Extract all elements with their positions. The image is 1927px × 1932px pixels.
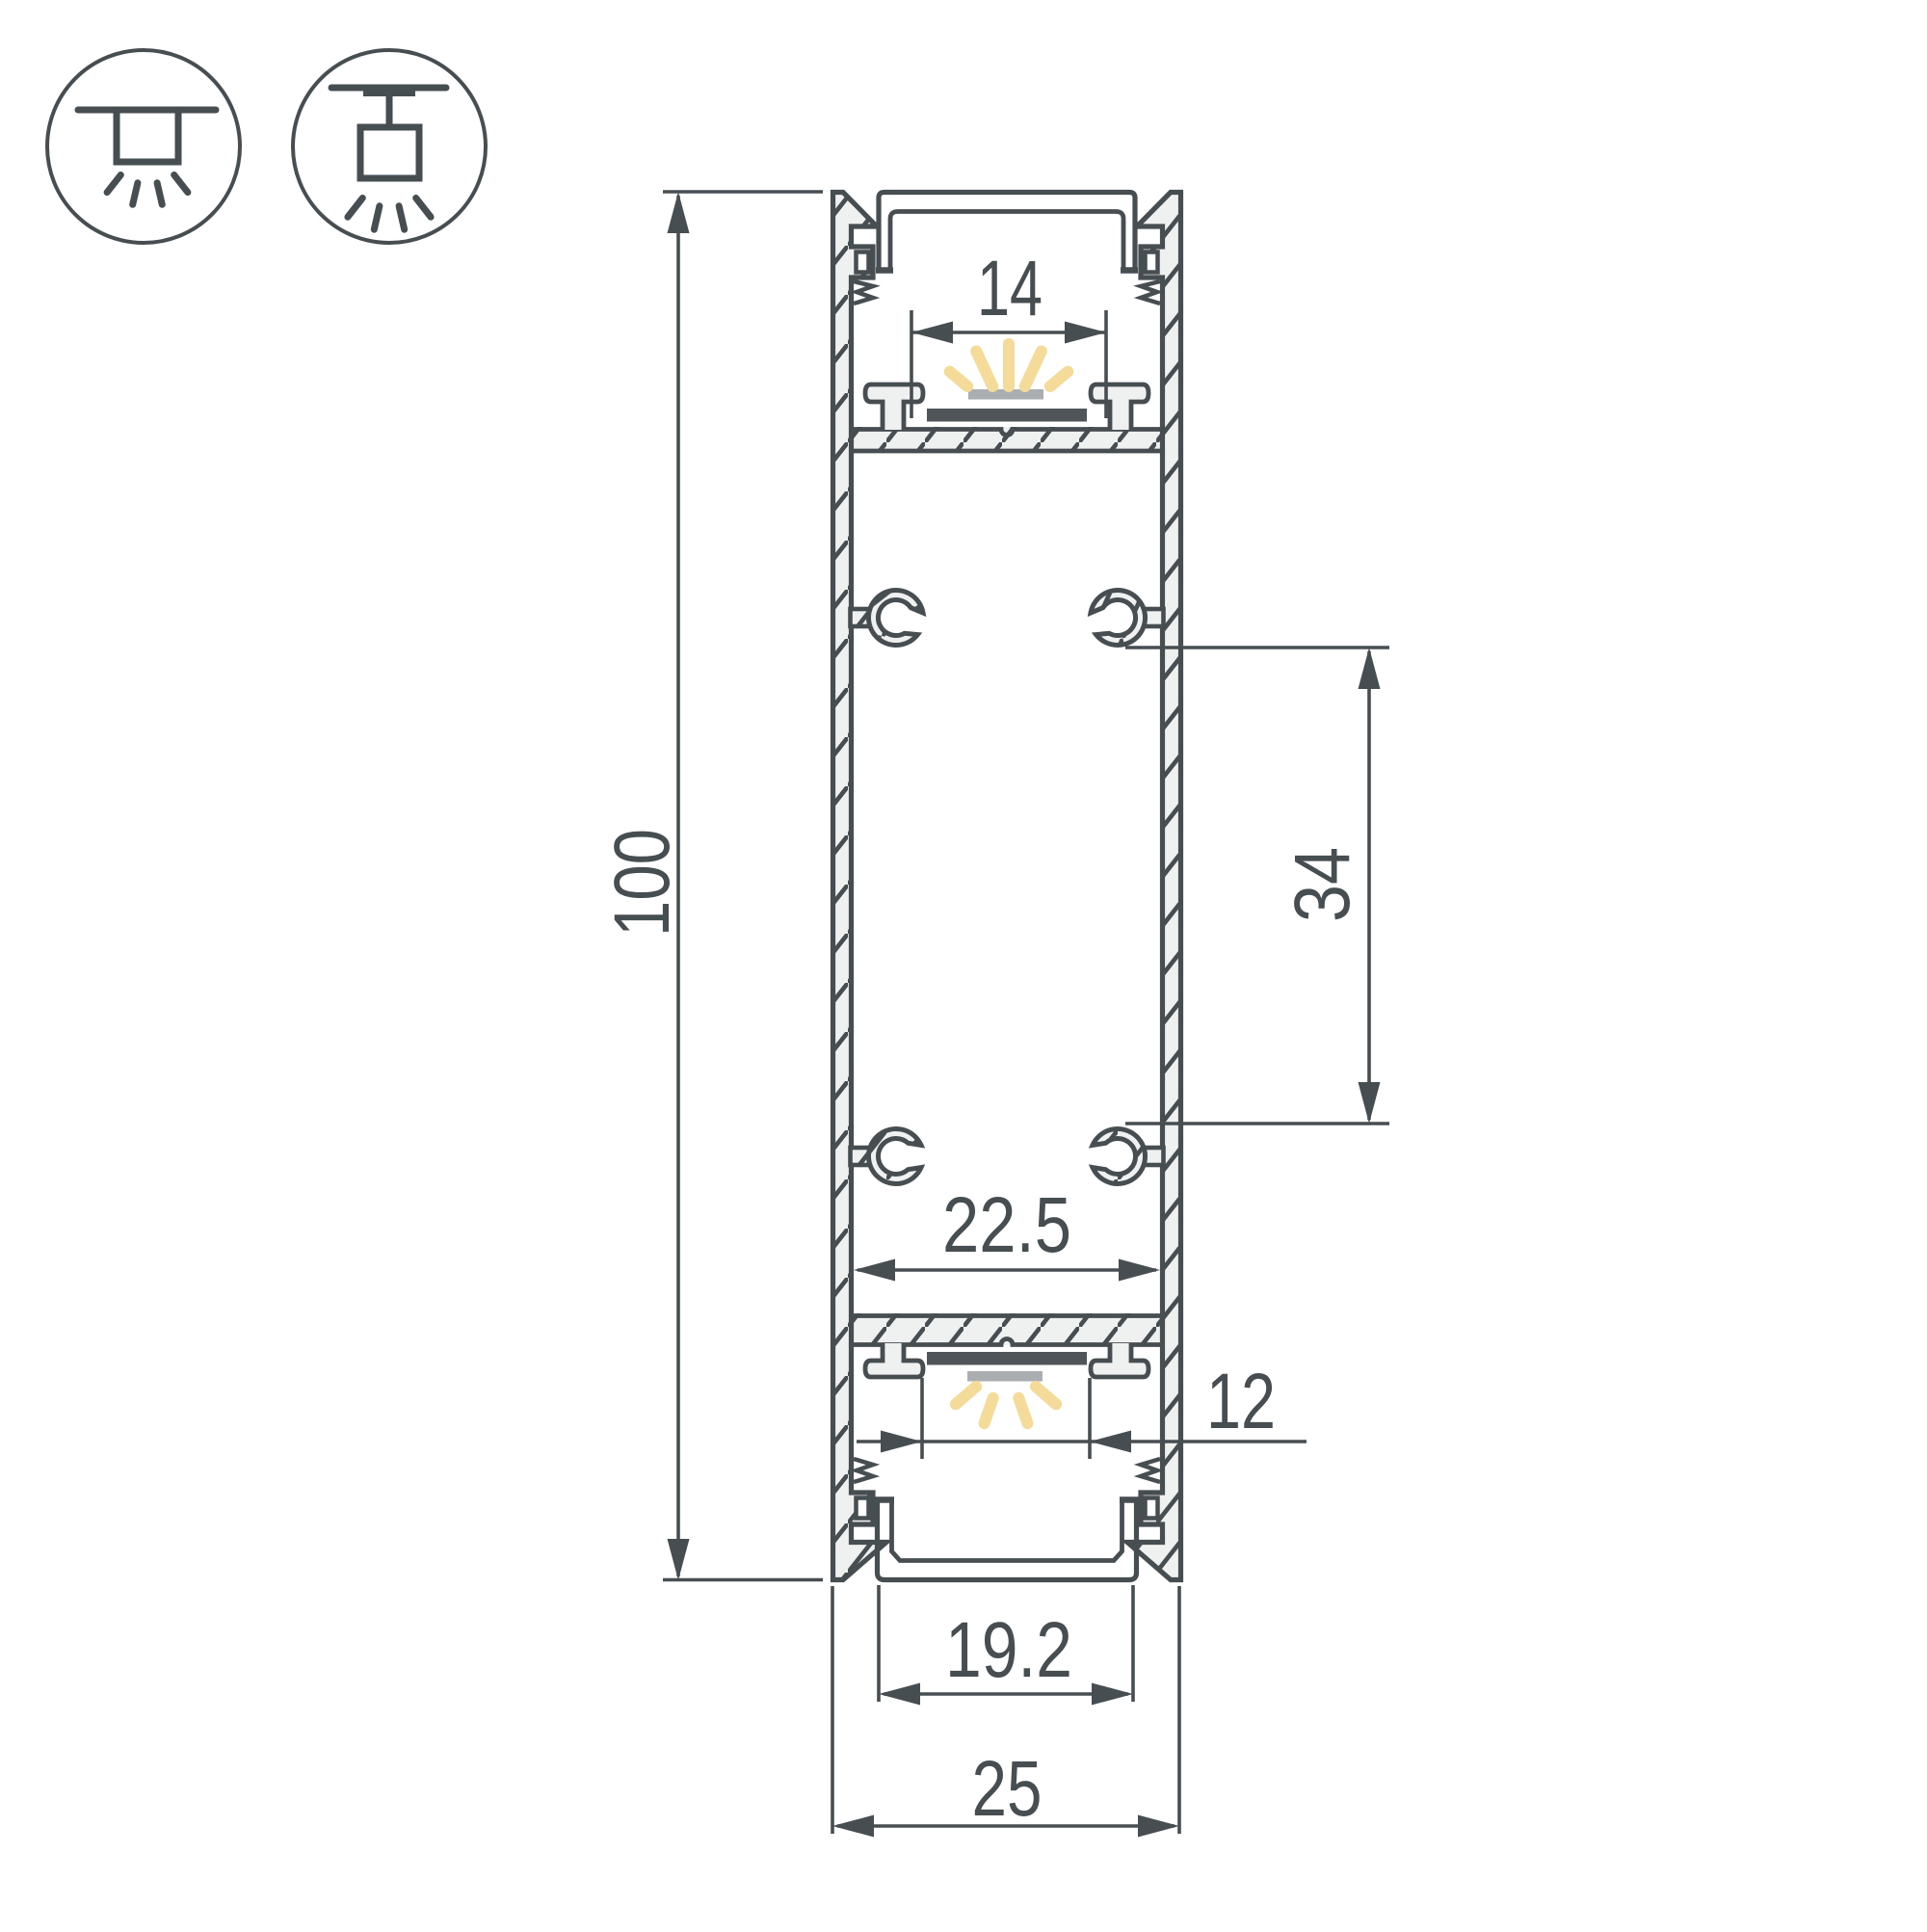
svg-text:100: 100 — [598, 829, 686, 937]
svg-text:25: 25 — [972, 1745, 1043, 1833]
svg-text:14: 14 — [977, 245, 1043, 332]
svg-text:34: 34 — [1279, 847, 1366, 922]
svg-text:12: 12 — [1206, 1358, 1276, 1445]
svg-text:22.5: 22.5 — [942, 1181, 1071, 1269]
svg-text:19.2: 19.2 — [945, 1606, 1072, 1694]
